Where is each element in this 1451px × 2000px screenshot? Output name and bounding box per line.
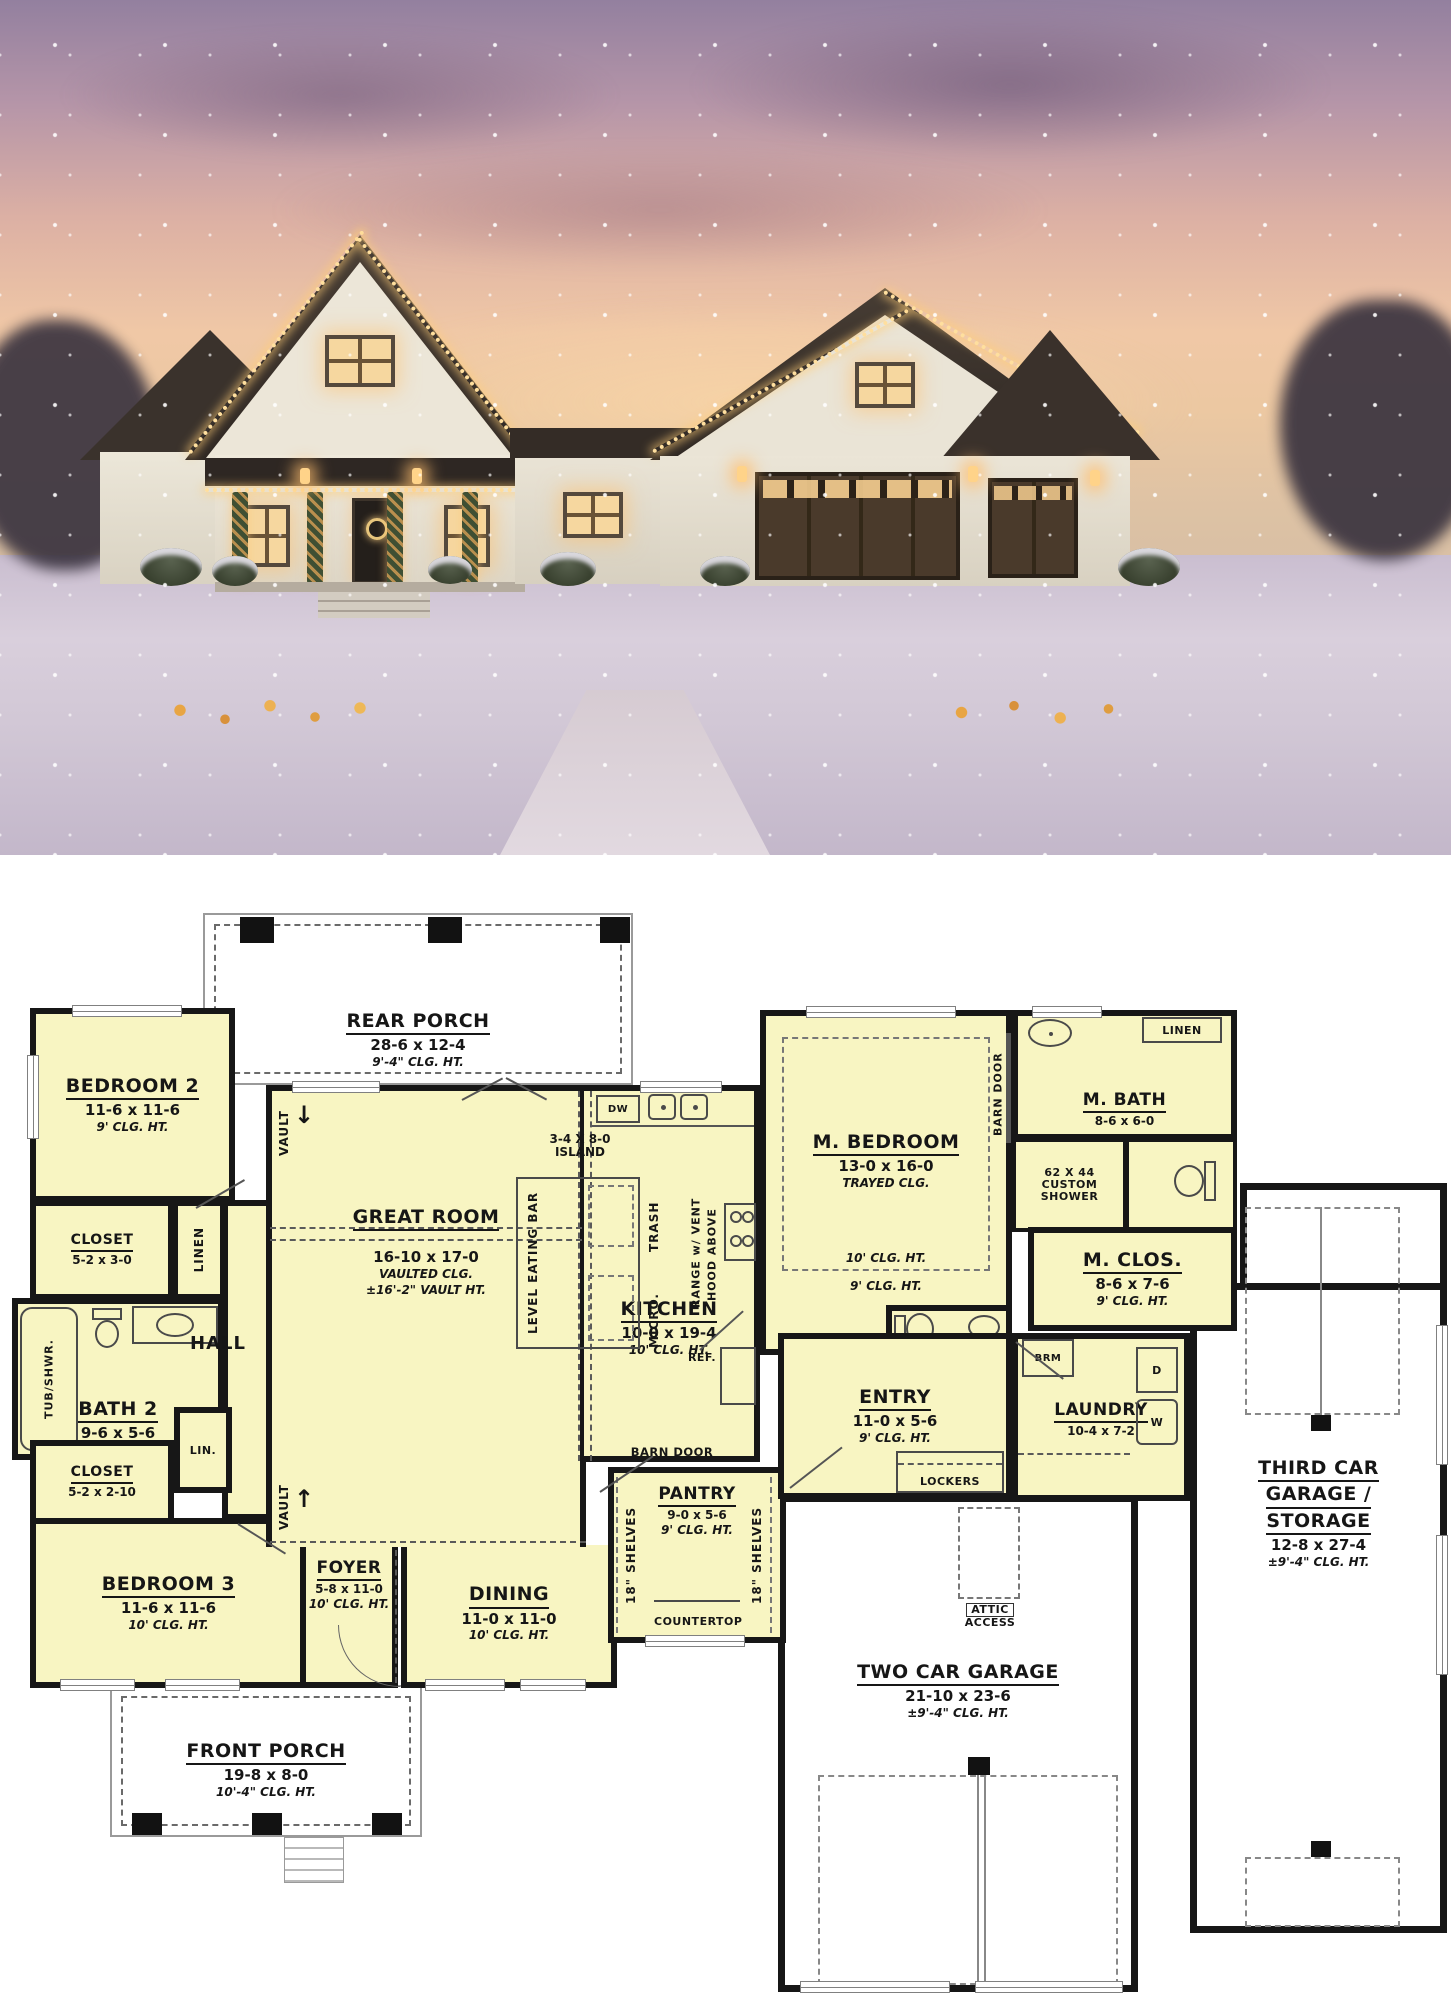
- room-linen-hall: LINEN: [172, 1200, 226, 1300]
- window: [1032, 1006, 1102, 1018]
- lockers-line: [898, 1463, 1002, 1465]
- room-ceiling: 10'-4" CLG. HT.: [216, 1786, 316, 1799]
- room-dims: 5-2 x 2-10: [68, 1486, 136, 1499]
- room-dining: DINING 11-0 x 11-0 10' CLG. HT.: [401, 1545, 617, 1688]
- tray-outer-ceiling: 9' CLG. HT.: [782, 1279, 990, 1293]
- window: [425, 1679, 505, 1691]
- room-name: GARAGE /: [1266, 1484, 1372, 1508]
- sink-icon: [1028, 1019, 1072, 1047]
- washer: W: [1136, 1399, 1178, 1445]
- microwave-drawer: [588, 1275, 634, 1341]
- room-name: DINING: [469, 1584, 549, 1608]
- closet-label: CLOSET 5-2 x 3-0: [71, 1233, 134, 1267]
- page: { "photo": { "colors": { "sky_top": "#9b…: [0, 0, 1451, 2000]
- ref-label: REF.: [670, 1351, 716, 1364]
- room-name: CLOSET: [71, 1465, 134, 1484]
- room-m-clos: M. CLOS. 8-6 x 7-6 9' CLG. HT.: [1028, 1227, 1237, 1331]
- room-name: PANTRY: [658, 1485, 735, 1507]
- pantry-countertop: COUNTERTOP: [654, 1600, 740, 1629]
- vault-label: VAULT: [276, 1477, 292, 1537]
- room-name: CLOSET: [71, 1233, 134, 1252]
- trash-drawer: [588, 1185, 634, 1247]
- entry-label: ENTRY 11-0 x 5-6 9' CLG. HT.: [853, 1387, 938, 1446]
- room-ceiling: 9' CLG. HT.: [96, 1121, 168, 1134]
- kitchen-sink: [648, 1094, 676, 1120]
- room-dims: 16-10 x 17-0: [373, 1249, 479, 1266]
- m-bath-label: M. BATH 8-6 x 6-0: [1018, 1091, 1231, 1128]
- porch-post: [240, 917, 274, 943]
- room-ceiling: 10' CLG. HT.: [128, 1619, 208, 1632]
- third-garage-post: [1311, 1841, 1331, 1857]
- front-steps: [284, 1837, 344, 1883]
- room-dims: 12-8 x 27-4: [1271, 1537, 1366, 1554]
- third-garage-divider: [1320, 1207, 1322, 1415]
- third-garage-parking-outline: [1245, 1207, 1400, 1415]
- room-ceiling: 10' CLG. HT.: [469, 1629, 549, 1642]
- bedroom3-label: BEDROOM 3 11-6 x 11-6 10' CLG. HT.: [102, 1574, 235, 1633]
- broom-closet: BRM: [1022, 1339, 1074, 1377]
- burner: [730, 1235, 742, 1247]
- porch-post: [428, 917, 462, 943]
- house-photo: [0, 0, 1451, 855]
- range-label-line2: HOOD ABOVE: [704, 1185, 720, 1325]
- room-ceiling: 10' CLG. HT.: [309, 1598, 389, 1611]
- tub-shower-label: TUB/SHWR.: [22, 1309, 76, 1449]
- room-ceiling: 9' CLG. HT.: [1096, 1295, 1168, 1308]
- toilet-icon: [95, 1320, 119, 1348]
- room-name: TWO CAR GARAGE: [857, 1662, 1059, 1686]
- burner: [730, 1211, 742, 1223]
- window: [806, 1006, 956, 1018]
- access-label: ACCESS: [965, 1617, 1016, 1629]
- window: [27, 1055, 39, 1139]
- room-ceiling: VAULTED CLG.: [379, 1268, 473, 1281]
- shelves-label: 18" SHELVES: [616, 1477, 644, 1633]
- room-name: HALL: [190, 1333, 246, 1354]
- room-bedroom2: BEDROOM 2 11-6 x 11-6 9' CLG. HT.: [30, 1008, 235, 1202]
- room-dims: 10-4 x 7-2: [1067, 1425, 1135, 1438]
- island-caption: 3-4 X 8-0 ISLAND: [505, 1133, 655, 1160]
- room-dims: 8-6 x 6-0: [1095, 1115, 1154, 1128]
- linen-label: LINEN: [1162, 1024, 1202, 1037]
- garage-bay-divider: [977, 1775, 979, 1985]
- range-icon: [724, 1203, 756, 1261]
- micro-label: MICRO.: [644, 1281, 664, 1361]
- eating-bar-label: LEVEL EATING BAR: [522, 1185, 544, 1341]
- room-dims: 11-6 x 11-6: [121, 1600, 216, 1617]
- great-room-break: [270, 1541, 586, 1543]
- garage-bay-divider: [984, 1775, 986, 1985]
- foyer-label: FOYER 5-8 x 11-0 10' CLG. HT.: [306, 1559, 392, 1612]
- room-dims: 5-2 x 3-0: [72, 1254, 131, 1267]
- rear-porch-label: REAR PORCH 28-6 x 12-4 9'-4" CLG. HT.: [205, 1011, 631, 1070]
- vault-label: VAULT: [276, 1103, 292, 1163]
- room-custom-shower: 62 X 44 CUSTOM SHOWER: [1012, 1138, 1127, 1232]
- attic-access-label: ATTIC ACCESS: [930, 1603, 1050, 1630]
- drain: [661, 1105, 666, 1110]
- porch-post: [600, 917, 630, 943]
- dishwasher: DW: [596, 1095, 640, 1123]
- linen-cabinet: LINEN: [1142, 1017, 1222, 1043]
- room-name: THIRD CAR: [1258, 1458, 1379, 1482]
- laundry-counter-line: [1018, 1453, 1130, 1455]
- room-name: REAR PORCH: [346, 1011, 489, 1035]
- closet-label: CLOSET 5-2 x 2-10: [68, 1465, 136, 1499]
- garage-door-opening: [975, 1981, 1123, 1993]
- room-name: FOYER: [317, 1559, 382, 1581]
- linen-label: LINEN: [192, 1227, 206, 1272]
- lin-label: LIN.: [190, 1444, 217, 1457]
- shower-word2: SHOWER: [1041, 1191, 1099, 1203]
- room-name: STORAGE: [1266, 1511, 1370, 1535]
- dryer: D: [1136, 1347, 1178, 1393]
- room-ceiling: 9' CLG. HT.: [661, 1524, 733, 1537]
- dryer-label: D: [1152, 1364, 1162, 1377]
- room-dims: 11-0 x 5-6: [853, 1413, 938, 1430]
- attic-label: ATTIC: [966, 1603, 1014, 1617]
- window: [72, 1005, 182, 1017]
- third-garage-parking-outline: [1245, 1857, 1400, 1927]
- room-name: BEDROOM 2: [66, 1076, 199, 1100]
- vault-arrow-up: ↑: [294, 1485, 314, 1513]
- burner: [742, 1211, 754, 1223]
- room-name: BATH 2: [78, 1399, 157, 1423]
- room-dims: 11-0 x 11-0: [461, 1611, 556, 1628]
- washer-label: W: [1151, 1416, 1164, 1429]
- room-dims: 28-6 x 12-4: [370, 1037, 465, 1054]
- two-car-garage-label: TWO CAR GARAGE 21-10 x 23-6 ±9'-4" CLG. …: [785, 1662, 1131, 1721]
- island-label: ISLAND: [555, 1146, 605, 1159]
- room-dims: 5-8 x 11-0: [315, 1583, 383, 1596]
- window: [645, 1635, 745, 1647]
- room-name: ENTRY: [859, 1387, 931, 1411]
- room-closet-bed2: CLOSET 5-2 x 3-0: [30, 1200, 174, 1300]
- room-ceiling: 9'-4" CLG. HT.: [372, 1056, 464, 1069]
- window: [165, 1679, 240, 1691]
- room-name: M. CLOS.: [1083, 1250, 1182, 1274]
- porch-post: [132, 1813, 162, 1835]
- dw-label: DW: [608, 1104, 628, 1115]
- shelves-label: 18" SHELVES: [744, 1477, 772, 1633]
- shower-dims: 62 X 44: [1044, 1167, 1094, 1179]
- garage-parking-outline: [818, 1775, 1118, 1985]
- window: [60, 1679, 135, 1691]
- room-name: M. BATH: [1083, 1091, 1166, 1113]
- room-closet-bed3: CLOSET 5-2 x 2-10: [30, 1440, 174, 1524]
- garage-door-opening: [800, 1981, 950, 1993]
- kitchen-sink: [680, 1094, 708, 1120]
- room-name: FRONT PORCH: [186, 1741, 345, 1765]
- lockers-label: LOCKERS: [920, 1475, 980, 1491]
- refrigerator: [720, 1347, 756, 1405]
- tray-ceiling-outline: [782, 1037, 990, 1271]
- porch-post: [252, 1813, 282, 1835]
- kitchen-counter-line: [592, 1125, 754, 1127]
- third-garage-door-opening: [1436, 1325, 1448, 1465]
- room-name: LAUNDRY: [1054, 1401, 1148, 1423]
- room-dims: 11-6 x 11-6: [85, 1102, 180, 1119]
- burner: [742, 1235, 754, 1247]
- tub-shower: TUB/SHWR.: [20, 1307, 78, 1451]
- garage-post: [968, 1757, 990, 1775]
- lockers: LOCKERS: [896, 1451, 1004, 1493]
- barn-door-leaf: [1006, 1033, 1011, 1143]
- barn-door-label: BARN DOOR: [990, 1035, 1006, 1153]
- window: [292, 1081, 380, 1093]
- room-dims: 9-0 x 5-6: [667, 1509, 726, 1522]
- room-lin-closet: LIN.: [174, 1407, 232, 1493]
- toilet-icon: [1174, 1165, 1204, 1197]
- falling-snow: [0, 0, 1451, 855]
- third-garage-door-opening: [1436, 1535, 1448, 1675]
- attic-access-panel: [958, 1507, 1020, 1599]
- window: [640, 1081, 722, 1093]
- toilet-icon: [1204, 1161, 1216, 1201]
- drain: [693, 1105, 698, 1110]
- room-dims: 19-8 x 8-0: [224, 1767, 309, 1784]
- third-garage-post: [1311, 1415, 1331, 1431]
- room-dims: 8-6 x 7-6: [1095, 1276, 1169, 1293]
- hall-label: HALL: [158, 1333, 278, 1354]
- front-porch-label: FRONT PORCH 19-8 x 8-0 10'-4" CLG. HT.: [112, 1741, 420, 1800]
- range-label-line1: RANGE w/ VENT: [688, 1177, 704, 1329]
- room-name: BEDROOM 3: [102, 1574, 235, 1598]
- countertop-label: COUNTERTOP: [654, 1615, 742, 1628]
- window: [520, 1679, 586, 1691]
- room-ceiling: ±9'-4" CLG. HT.: [907, 1707, 1009, 1720]
- room-ceiling2: ±16'-2" VAULT HT.: [366, 1284, 486, 1297]
- floor-plan: REAR PORCH 28-6 x 12-4 9'-4" CLG. HT. FR…: [0, 855, 1451, 2000]
- tray-inner-ceiling: 10' CLG. HT.: [782, 1251, 990, 1265]
- trash-label: TRASH: [644, 1183, 664, 1271]
- room-ceiling: 9' CLG. HT.: [859, 1432, 931, 1445]
- toilet-icon: [92, 1308, 122, 1320]
- porch-post: [372, 1813, 402, 1835]
- room-dims: 21-10 x 23-6: [905, 1688, 1011, 1705]
- third-car-garage-label: THIRD CAR GARAGE / STORAGE 12-8 x 27-4 ±…: [1197, 1458, 1440, 1569]
- bedroom2-label: BEDROOM 2 11-6 x 11-6 9' CLG. HT.: [66, 1076, 199, 1135]
- island-dims: 3-4 X 8-0: [550, 1133, 611, 1146]
- barn-door-label: BARN DOOR: [584, 1445, 760, 1459]
- dining-label: DINING 11-0 x 11-0 10' CLG. HT.: [461, 1584, 556, 1643]
- vault-arrow-down: ↓: [294, 1101, 314, 1129]
- drain: [1049, 1032, 1053, 1036]
- room-ceiling: ±9'-4" CLG. HT.: [1268, 1556, 1370, 1569]
- m-clos-label: M. CLOS. 8-6 x 7-6 9' CLG. HT.: [1083, 1250, 1182, 1309]
- shower-label: 62 X 44 CUSTOM SHOWER: [1041, 1167, 1099, 1204]
